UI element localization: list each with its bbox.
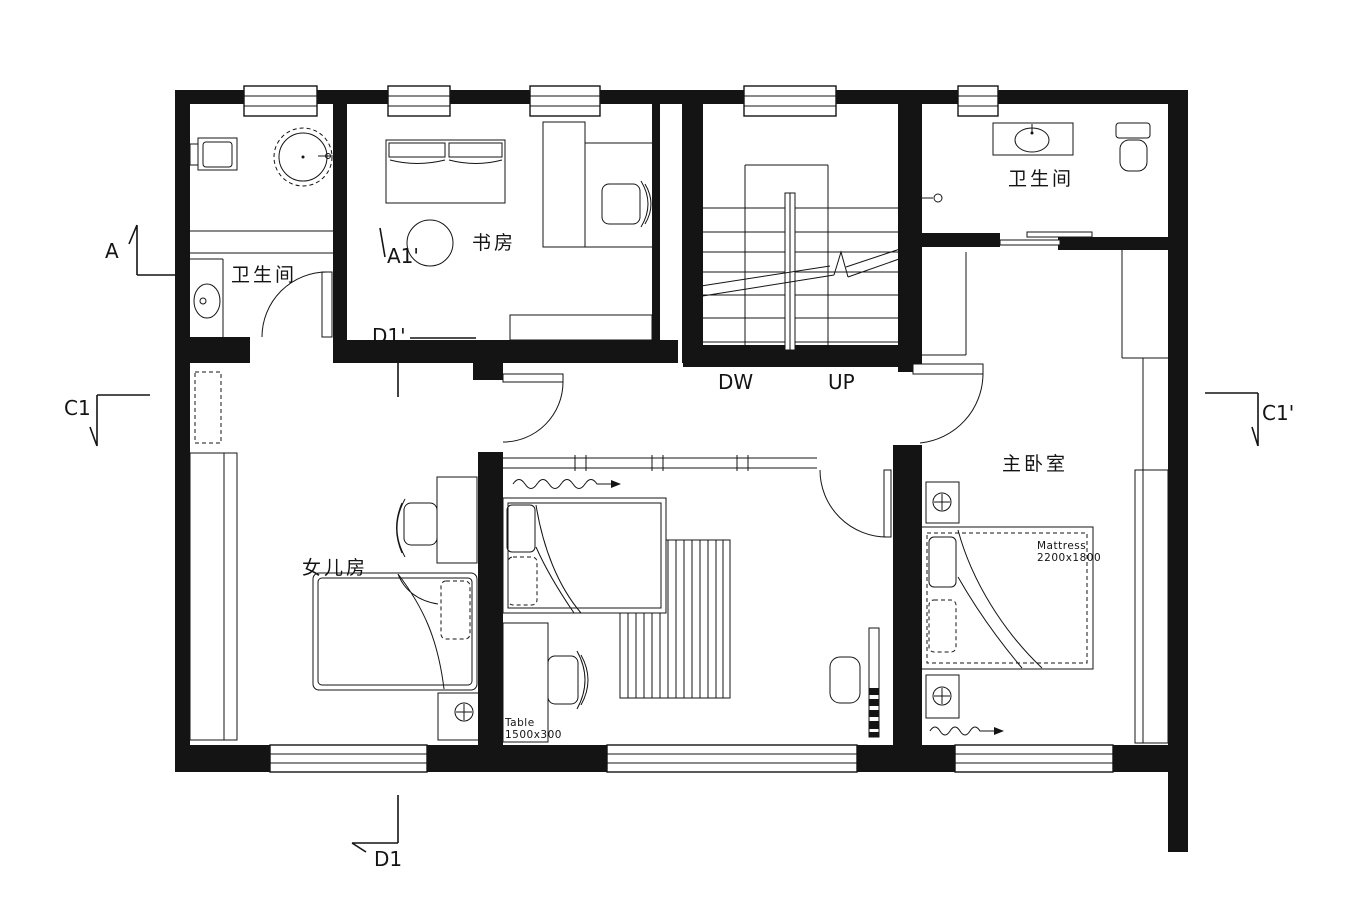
marker-label-a: A [105,239,119,263]
window-top-5 [958,86,998,116]
wall-stair-bottom [683,345,920,367]
floorplan-canvas: 卫生间 书房 卫生间 主卧室 女儿房 DW UP A A1' D1' C1 C1… [0,0,1356,908]
wall-study-right [652,104,660,345]
interior-walls [190,104,1168,745]
window-top-4 [744,86,836,116]
wavy-arrow [513,480,621,489]
study-desk-icon [543,143,652,247]
ottoman-icon [830,657,860,703]
marker-label-c1-prime: C1' [1262,401,1294,425]
wavy-arrow [930,727,1004,735]
toilet-bowl-icon [1120,140,1147,171]
pillow-icon [929,600,956,652]
study-cabinet-icon [543,122,585,247]
wall-master-left [893,445,922,745]
wall-bath-bottom-left [190,337,250,363]
bathroom-left-fixtures [190,128,339,337]
mattress-note-line2: 2200x1800 [1037,552,1101,564]
bed-icon [313,573,477,690]
stairwell [688,165,902,350]
chair-back-icon [577,651,588,709]
study-chair-icon [602,184,640,224]
dashed-cabinet-icon [195,372,221,443]
daughter-room-furniture [190,372,492,740]
lamp-icon [455,703,473,721]
window-top-1 [244,86,317,116]
room-label-daughter-room: 女儿房 [302,557,368,579]
section-marker-c1 [90,395,150,446]
master-bedroom-furniture [921,250,1168,743]
wardrobe-icon [190,453,237,740]
window-bottom-1 [270,745,427,772]
bed-inner-line [318,578,472,685]
daybed-cushion-lines [390,160,502,164]
study-chair-back-icon [641,181,651,227]
washer-drum-icon [203,142,232,167]
middle-room-furniture [503,455,879,742]
room-label-study: 书房 [472,232,516,254]
glazed-partition [503,455,817,471]
wall-bath-study [333,104,347,363]
bed-icon [503,498,666,613]
table-note-line1: Table [504,717,535,729]
wall-stair-left [682,104,703,363]
window-top-2 [388,86,450,116]
section-marker-c1-prime [1205,393,1258,446]
blanket-fold-lines [958,530,1042,668]
wall-right [1168,90,1188,852]
stairs-down-label: DW [718,370,753,394]
toilet-tank-icon [1116,123,1150,138]
door-master-bedroom [913,364,983,443]
radiator-icon [869,628,879,737]
wall-pier-daughter-door [473,361,503,380]
chair-icon [548,656,578,704]
wall-bath2-bottom-right [1058,237,1168,250]
washer-door-icon [190,144,198,165]
floorplan-drawing: 卫生间 书房 卫生间 主卧室 女儿房 DW UP A A1' D1' C1 C1… [0,0,1356,908]
toilet-icon [194,284,220,318]
wardrobe-icon [1135,470,1168,743]
wall-top [175,90,1188,104]
marker-label-c1: C1 [64,396,91,420]
section-marker-d1 [352,795,398,852]
desk-icon [437,477,477,563]
daybed-pillow-icon [389,143,445,157]
stairs-up-label: UP [828,370,855,394]
blanket-fold-lines [398,574,444,689]
wall-daughter-right [478,452,503,745]
faucet-dot [1031,132,1034,135]
toilet-flush-icon [200,298,206,304]
window-bottom-3 [955,745,1113,772]
section-marker-a1-prime [380,228,385,257]
window-top-3 [530,86,600,116]
daybed-pillow-icon [449,143,502,157]
lamp-icon [933,687,951,705]
bathroom-upper-right-fixtures [993,123,1150,171]
mattress-note-line1: Mattress [1037,540,1086,552]
room-label-bathroom-upper-right: 卫生间 [1008,168,1074,190]
wall-bath2-bottom-left [915,233,1000,247]
marker-label-a1-prime: A1' [387,244,419,268]
marker-label-d1: D1 [374,847,402,871]
study-low-cabinet-icon [510,315,652,340]
marker-label-d1-prime: D1' [372,324,406,348]
window-bottom-2 [607,745,857,772]
pillow-icon [929,537,956,587]
lamp-icon [933,493,951,511]
room-label-bathroom-left: 卫生间 [231,264,297,286]
door-daughter-room [503,374,563,442]
chair-icon [404,503,437,545]
study-furniture [386,122,652,340]
door-middle-room [820,470,891,537]
table-note-line2: 1500x300 [505,729,562,741]
tub-center-dot [302,156,305,159]
wall-left [175,90,190,772]
room-label-master-bedroom: 主卧室 [1002,453,1068,475]
pillow-icon [441,581,470,639]
